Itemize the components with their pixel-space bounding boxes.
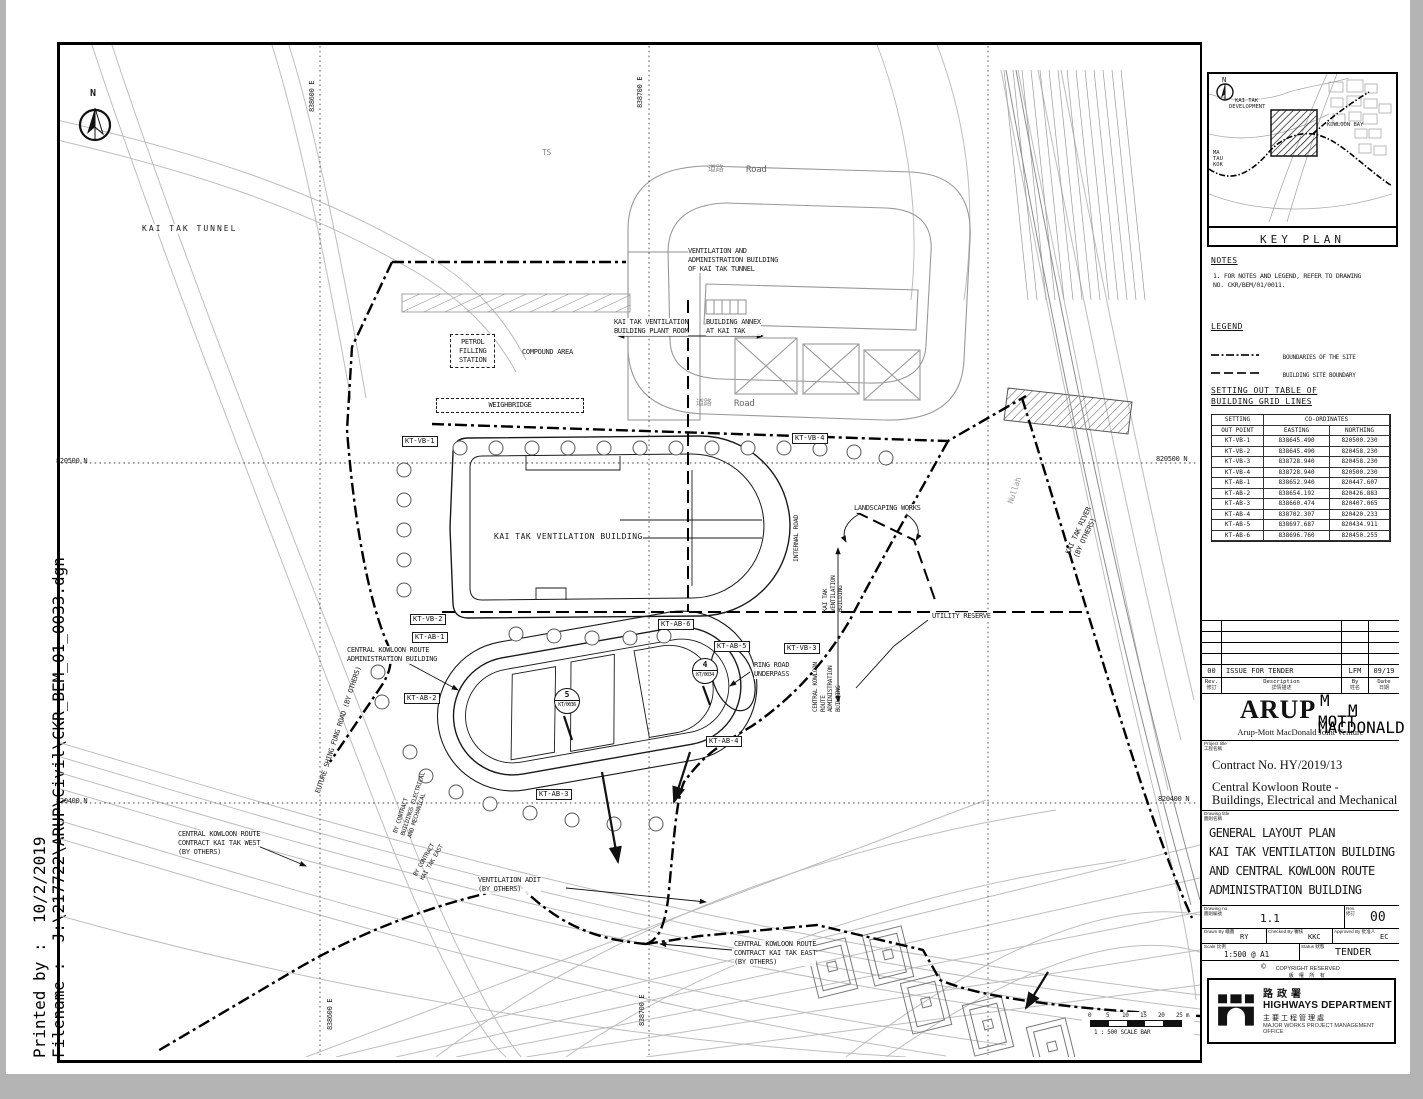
grid-820400n-right: 820400 N: [1158, 795, 1189, 804]
label-kt-vb-vertical: KAI TAK VENTILATION BUILDING: [822, 576, 845, 612]
checked-by-value: KKC: [1308, 933, 1321, 941]
marker-kt-vb-2: KT-VB-2: [410, 614, 446, 625]
marker-kt-ab-3: KT-AB-3: [536, 789, 572, 800]
joint-venture-line: Arup-Mott MacDonald Joint Venture: [1202, 727, 1399, 737]
marker-kt-ab-5: KT-AB-5: [714, 641, 750, 652]
scale-tick: 10: [1122, 1012, 1129, 1020]
drawn-by-value: RY: [1240, 933, 1248, 941]
marker-kt-vb-3: KT-VB-3: [784, 643, 820, 654]
grid-838700e-bottom: 838700 E: [638, 995, 647, 1026]
marker-kt-vb-1: KT-VB-1: [402, 436, 438, 447]
label-ckr-ab-vertical: CENTRAL KOWLOON ROUTE ADMINISTRATION BUI…: [812, 662, 842, 712]
drawing-title-3: AND CENTRAL KOWLOON ROUTE: [1209, 864, 1375, 879]
notes-heading: NOTES: [1211, 256, 1238, 266]
department-block: 路政署 HIGHWAYS DEPARTMENT 主要工程管理處 MAJOR WO…: [1207, 978, 1396, 1044]
section-marker-4: 4 KT/0034: [692, 658, 718, 684]
label-compound-area: COMPOUND AREA: [522, 348, 573, 357]
drawing-title-4: ADMINISTRATION BUILDING: [1209, 883, 1361, 898]
project-label-zh: 工程名稱: [1204, 746, 1222, 751]
status-value: TENDER: [1335, 947, 1371, 958]
grid-838600e-bottom: 838600 E: [326, 999, 335, 1030]
personnel-row: Drawn By 繪圖 RY Checked By 審核 KKC Approve…: [1202, 928, 1399, 944]
marker-kt-ab-4: KT-AB-4: [706, 736, 742, 747]
project-block: Project title工程名稱 Contract No. HY/2019/1…: [1202, 740, 1399, 811]
label-petrol-station: PETROL FILLING STATION: [450, 334, 495, 368]
notes-item: 1. FOR NOTES AND LEGEND, REFER TO DRAWIN…: [1213, 272, 1361, 290]
rev-value: 00: [1370, 910, 1386, 925]
label-vent-admin-building: VENTILATION AND ADMINISTRATION BUILDING …: [688, 247, 778, 273]
drawing-number-row: Drawing no.圖則編號 1.1 Rev.修訂 00: [1202, 905, 1399, 929]
mott-macdonald-logo: M: [1320, 691, 1330, 710]
legend-heading: LEGEND: [1211, 322, 1243, 332]
scale-value: 1:500 @ A1: [1224, 950, 1269, 959]
drawing-title-1: GENERAL LAYOUT PLAN: [1209, 826, 1335, 841]
north-arrow-icon: [80, 108, 110, 141]
section-marker-5: 5 KT/0036: [554, 688, 580, 714]
scale-bar: 0 5 10 15 20 25 m 1 : 500 SCALE BAR: [1082, 1012, 1194, 1038]
scale-tick: 5: [1106, 1012, 1109, 1020]
label-landscaping: LANDSCAPING WORKS: [854, 504, 921, 513]
label-kt-vent-building: KAI TAK VENTILATION BUILDING: [494, 532, 643, 542]
scale-caption: 1 : 500 SCALE BAR: [1094, 1029, 1150, 1037]
section-ref: KT/0036: [555, 701, 579, 708]
marker-kt-ab-2: KT-AB-2: [404, 693, 440, 704]
department-en: HIGHWAYS DEPARTMENT: [1263, 1000, 1394, 1011]
key-plan-north: N: [1222, 76, 1226, 84]
section-number: 5: [555, 689, 579, 701]
grid-820500n-left: 820500 N: [56, 457, 87, 466]
section-number: 4: [693, 659, 717, 671]
legend-item-site-boundary: BOUNDARIES OF THE SITE: [1211, 344, 1396, 354]
marker-kt-ab-6: KT-AB-6: [658, 619, 694, 630]
scale-tick: 20: [1158, 1012, 1165, 1020]
grid-838700e-top: 838700 E: [636, 77, 645, 108]
label-ts: TS: [542, 148, 551, 158]
highways-department-logo: [1217, 993, 1255, 1027]
setting-out-table: SETTING CO-ORDINATES OUT POINT EASTING N…: [1211, 414, 1391, 542]
label-road-top: Road: [746, 165, 766, 176]
label-ring-road-underpass: RING ROAD UNDERPASS: [754, 661, 789, 679]
revision-table: 00 ISSUE FOR TENDER LFM 09/19 Rev.修訂 Des…: [1202, 620, 1399, 694]
revision-date: 09/19: [1369, 665, 1399, 678]
grid-820400n-left: 820400 N: [56, 797, 87, 806]
label-ckr-admin-building: CENTRAL KOWLOON ROUTE ADMINISTRATION BUI…: [347, 646, 437, 664]
contract-no: Contract No. HY/2019/13: [1212, 758, 1342, 773]
label-plant-room: KAI TAK VENTILATION BUILDING PLANT ROOM: [614, 318, 688, 336]
marker-kt-ab-1: KT-AB-1: [412, 632, 448, 643]
consultant-block: ARUP M M MOTT MACDONALD Arup-Mott MacDon…: [1202, 691, 1399, 741]
label-kai-tak-tunnel: KAI TAK TUNNEL: [142, 224, 237, 234]
section-ref: KT/0034: [693, 671, 717, 678]
drawing-title-2: KAI TAK VENTILATION BUILDING: [1209, 845, 1395, 860]
project-name-2: Buildings, Electrical and Mechanical: [1212, 793, 1397, 808]
key-plan-label-bay: KOWLOON BAY: [1327, 122, 1364, 128]
grid-838600e-top: 838600 E: [308, 81, 317, 112]
label-weighbridge: WEIGHBRIDGE: [436, 398, 584, 413]
label-road-mid: Road: [734, 399, 754, 410]
label-utility-reserve: UTILITY RESERVE: [932, 612, 991, 621]
north-label: N: [90, 88, 96, 101]
key-plan-map: N KAI TAK DEVELOPMENT KOWLOON BAY MA TAU…: [1207, 72, 1398, 228]
arup-logo: ARUP: [1240, 695, 1316, 725]
scale-tick: 15: [1140, 1012, 1147, 1020]
scale-tick: 0: [1088, 1012, 1091, 1020]
key-plan-site-hatch: [1271, 110, 1317, 156]
drawing-no-value: 1.1: [1260, 912, 1280, 925]
label-road-mid-zh: 道路: [696, 398, 711, 408]
label-ckr-west: CENTRAL KOWLOON ROUTE CONTRACT KAI TAK W…: [178, 830, 260, 856]
label-ckr-east: CENTRAL KOWLOON ROUTE CONTRACT KAI TAK E…: [734, 940, 816, 966]
marker-kt-vb-4: KT-VB-4: [792, 433, 828, 444]
revision-rev: 00: [1202, 665, 1222, 678]
svg-text:KOK: KOK: [1213, 162, 1224, 168]
svg-text:DEVELOPMENT: DEVELOPMENT: [1229, 104, 1266, 110]
copyright-en: COPYRIGHT RESERVED: [1276, 966, 1340, 972]
department-office-en: MAJOR WORKS PROJECT MANAGEMENT OFFICE: [1263, 1023, 1394, 1035]
setting-out-heading: SETTING OUT TABLE OF BUILDING GRID LINES: [1211, 386, 1317, 408]
grid-820500n-right: 820500 N: [1156, 455, 1187, 464]
drawing-canvas: N KAI TAK TUNNEL TS 道路 Road 道路 Road VENT…: [0, 0, 1423, 1099]
key-plan-title: KEY PLAN: [1207, 226, 1398, 247]
drawing-title-block: Drawing title圖則名稱 GENERAL LAYOUT PLAN KA…: [1202, 810, 1399, 906]
department-office-zh: 主要工程管理處: [1263, 1013, 1394, 1023]
scale-status-row: Scale 比例 1:500 @ A1 Status 狀態 TENDER: [1202, 943, 1399, 961]
approved-by-value: EC: [1380, 933, 1388, 941]
revision-by: LFM: [1342, 665, 1369, 678]
label-road-top-zh: 道路: [708, 164, 723, 174]
drawing-sheet: N KAI TAK TUNNEL TS 道路 Road 道路 Road VENT…: [6, 0, 1410, 1074]
label-ventilation-adit: VENTILATION ADIT (BY OTHERS): [478, 876, 541, 894]
scale-tick: 25 m: [1176, 1012, 1189, 1020]
department-zh: 路政署: [1263, 985, 1394, 1000]
title-block: N KAI TAK DEVELOPMENT KOWLOON BAY MA TAU…: [1200, 42, 1399, 1063]
legend-item-building-boundary: BUILDING SITE BOUNDARY: [1211, 362, 1396, 372]
label-internal-road: INTERNAL ROAD: [792, 515, 800, 562]
revision-description: ISSUE FOR TENDER: [1222, 665, 1342, 678]
label-building-annex: BUILDING ANNEX AT KAI TAK: [706, 318, 761, 336]
